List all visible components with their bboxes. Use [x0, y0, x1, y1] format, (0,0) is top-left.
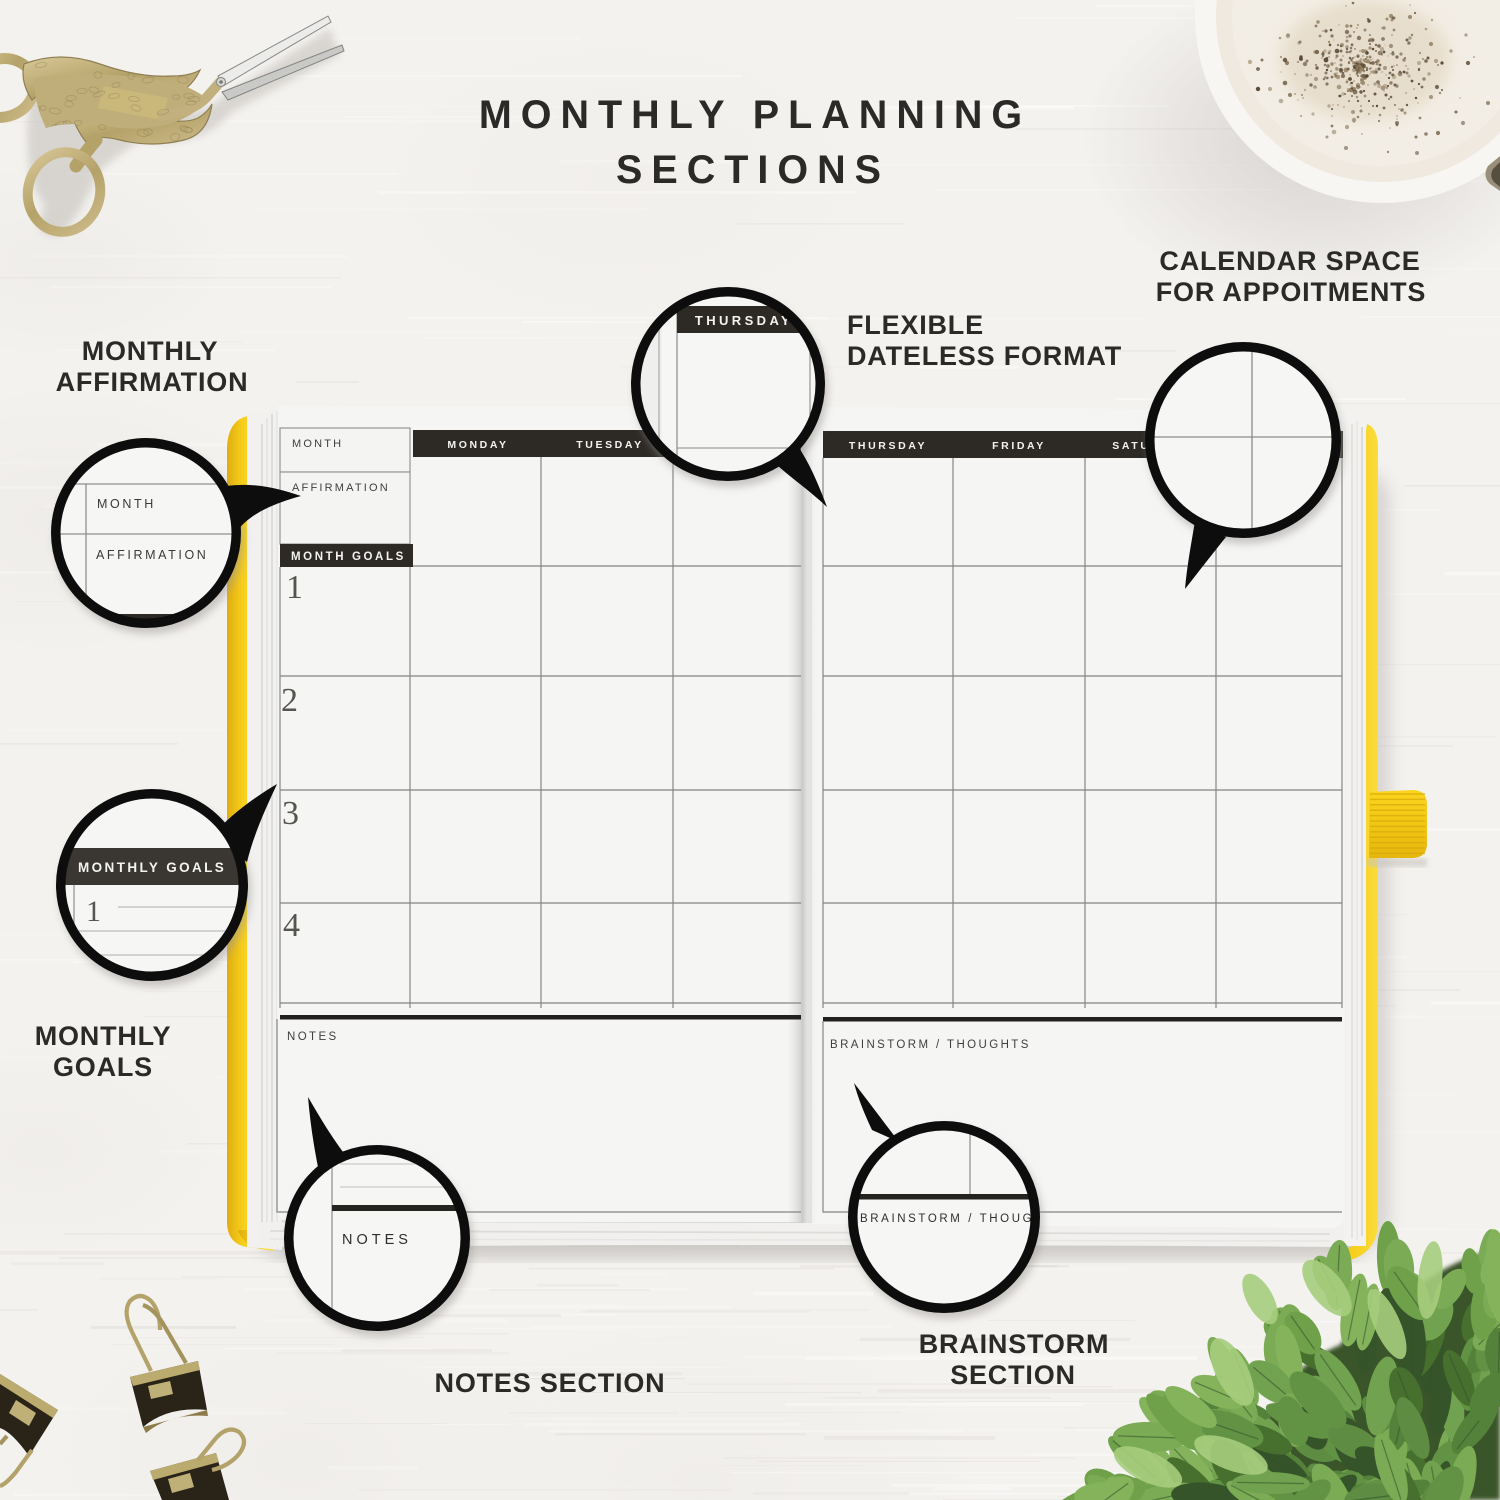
svg-text:DATELESS FORMAT: DATELESS FORMAT — [847, 341, 1122, 371]
svg-text:BRAINSTORM / THOUGH: BRAINSTORM / THOUGH — [860, 1213, 1045, 1225]
svg-text:SECTION: SECTION — [950, 1360, 1076, 1390]
svg-text:MONTHLY: MONTHLY — [35, 1021, 172, 1051]
svg-text:NOTES: NOTES — [342, 1232, 412, 1248]
svg-text:MONTHLY PLANNING: MONTHLY PLANNING — [479, 93, 1031, 137]
svg-text:GOALS: GOALS — [53, 1052, 153, 1082]
svg-text:BRAINSTORM: BRAINSTORM — [919, 1329, 1110, 1359]
svg-text:MONDAY: MONDAY — [447, 439, 508, 451]
svg-text:SECTIONS: SECTIONS — [616, 148, 890, 192]
svg-text:NOTES SECTION: NOTES SECTION — [435, 1368, 666, 1398]
svg-text:AFFIRMATION: AFFIRMATION — [292, 482, 390, 494]
svg-text:CALENDAR SPACE: CALENDAR SPACE — [1159, 246, 1420, 276]
svg-text:2: 2 — [281, 682, 298, 719]
svg-text:MONTH GOALS: MONTH GOALS — [291, 551, 406, 563]
svg-text:FLEXIBLE: FLEXIBLE — [847, 310, 984, 340]
svg-text:THURSDAY: THURSDAY — [849, 440, 927, 452]
svg-text:NOTES: NOTES — [287, 1031, 339, 1043]
svg-text:1: 1 — [86, 895, 101, 928]
svg-text:FOR APPOITMENTS: FOR APPOITMENTS — [1156, 277, 1427, 307]
svg-text:1: 1 — [286, 569, 303, 606]
svg-text:MONTH: MONTH — [292, 438, 343, 450]
svg-text:MONTHLY: MONTHLY — [82, 336, 219, 366]
svg-text:TUESDAY: TUESDAY — [576, 439, 643, 451]
svg-text:AFFIRMATION: AFFIRMATION — [96, 548, 208, 562]
svg-text:4: 4 — [283, 907, 300, 944]
svg-text:BRAINSTORM / THOUGHTS: BRAINSTORM / THOUGHTS — [830, 1039, 1031, 1051]
svg-text:THURSDAY: THURSDAY — [695, 313, 793, 328]
svg-text:MONTHLY GOALS: MONTHLY GOALS — [78, 860, 226, 875]
svg-text:AFFIRMATION: AFFIRMATION — [56, 367, 249, 397]
svg-text:MONTH: MONTH — [97, 497, 156, 511]
svg-text:FRIDAY: FRIDAY — [992, 440, 1046, 452]
svg-text:3: 3 — [282, 795, 299, 832]
